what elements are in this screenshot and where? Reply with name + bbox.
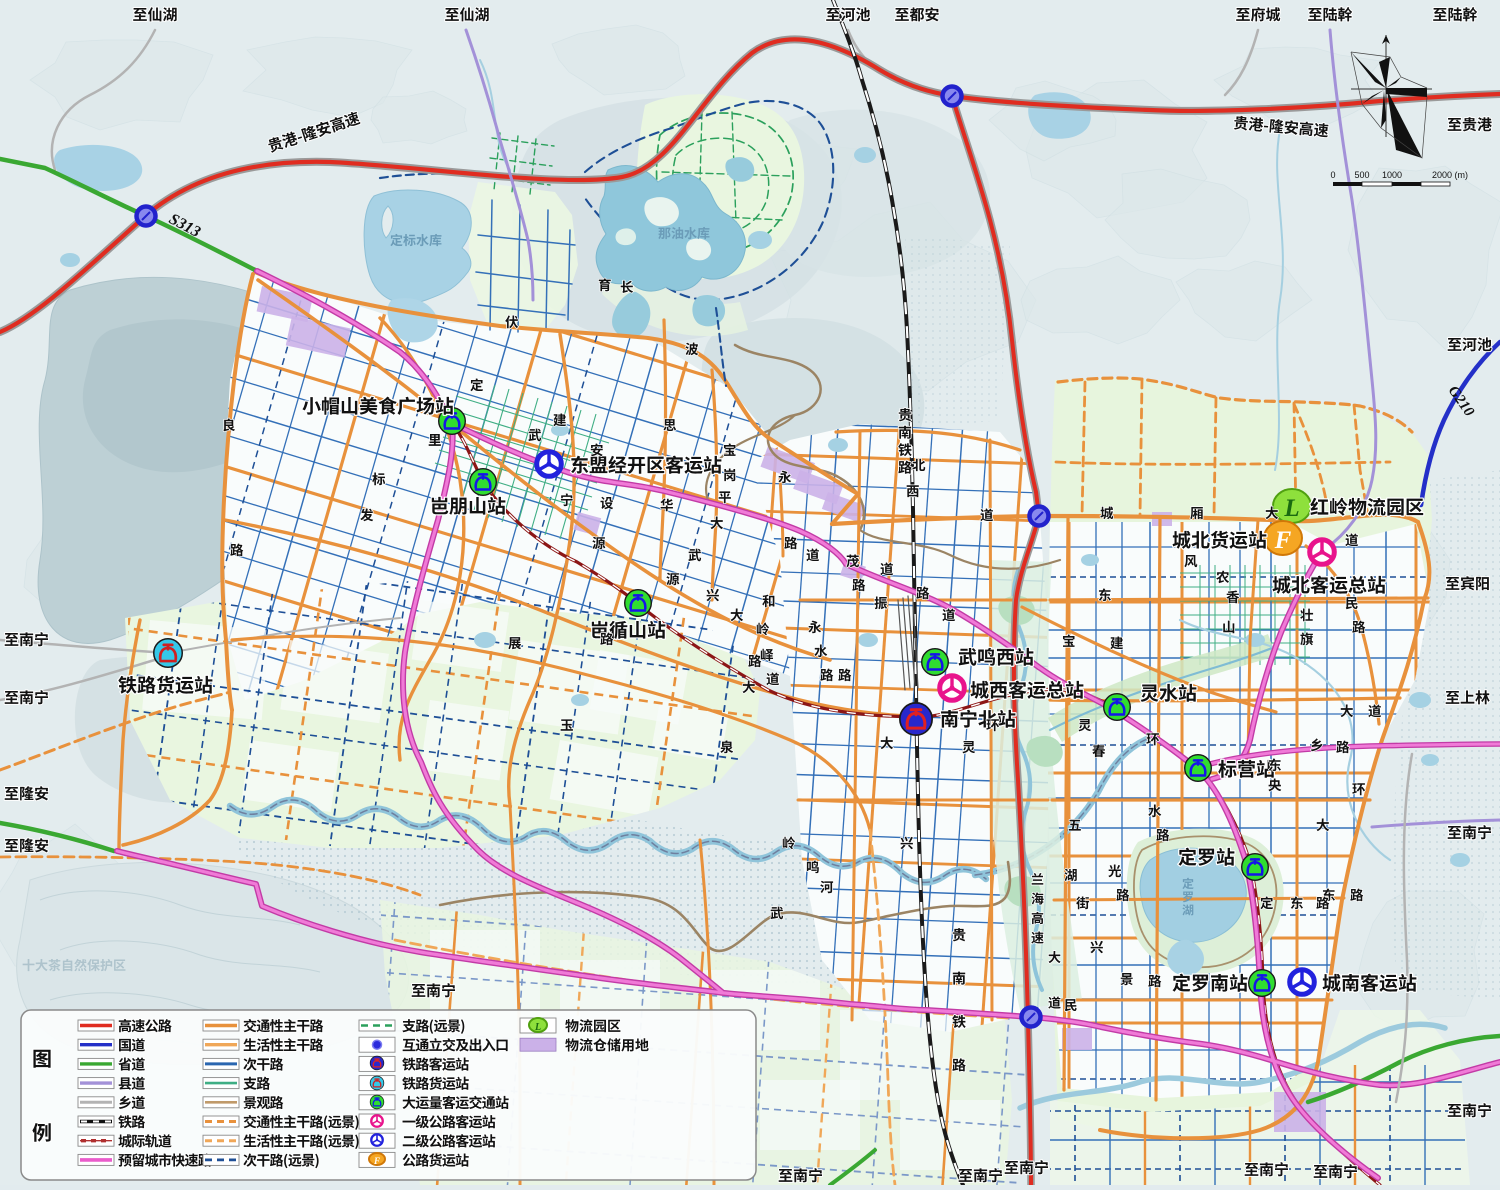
svg-text:2000 (m): 2000 (m) <box>1432 170 1468 180</box>
svg-text:500: 500 <box>1354 170 1369 180</box>
svg-text:L: L <box>1283 495 1299 522</box>
svg-text:L: L <box>534 1022 541 1033</box>
svg-text:1000: 1000 <box>1382 170 1402 180</box>
svg-text:F: F <box>373 1156 380 1166</box>
svg-text:F: F <box>1274 527 1292 554</box>
svg-text:0: 0 <box>1330 170 1335 180</box>
